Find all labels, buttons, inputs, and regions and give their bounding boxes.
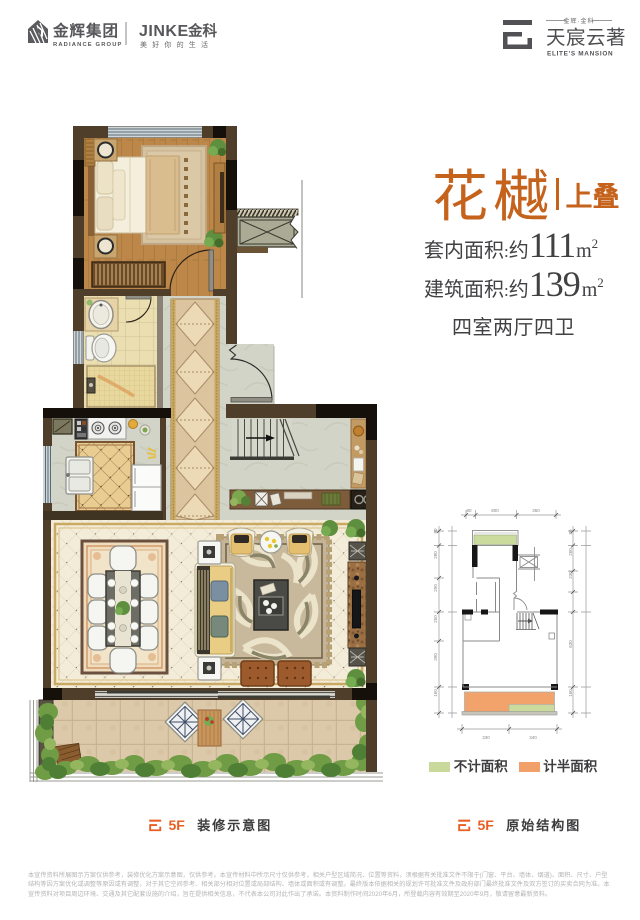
svg-text:360: 360 <box>532 508 540 513</box>
svg-text:250: 250 <box>433 615 438 623</box>
svg-text:230: 230 <box>568 571 573 579</box>
svg-text:260: 260 <box>568 548 573 556</box>
svg-text:800: 800 <box>491 508 499 513</box>
svg-text:160: 160 <box>568 689 573 697</box>
svg-text:280: 280 <box>433 551 438 559</box>
svg-text:160: 160 <box>433 689 438 697</box>
svg-text:80: 80 <box>433 528 438 534</box>
svg-text:80: 80 <box>466 508 472 513</box>
svg-text:290: 290 <box>433 584 438 592</box>
svg-text:340: 340 <box>529 735 537 740</box>
svg-text:80: 80 <box>568 529 573 535</box>
svg-text:630: 630 <box>568 640 573 648</box>
svg-text:330: 330 <box>482 735 490 740</box>
svg-text:390: 390 <box>433 653 438 661</box>
